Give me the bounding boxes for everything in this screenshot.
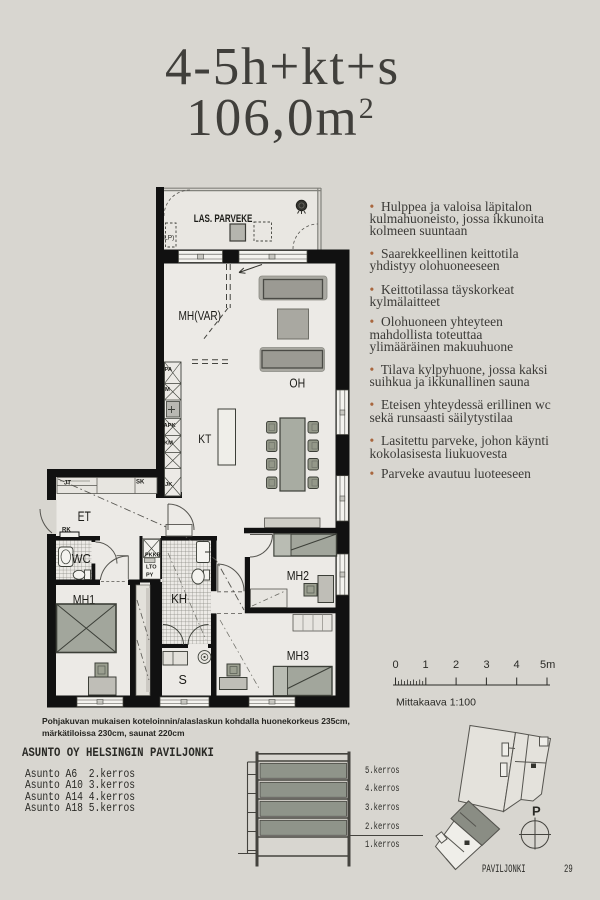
svg-text:3: 3: [484, 659, 490, 671]
svg-text:S: S: [179, 673, 187, 687]
svg-text:LAS. PARVEKE: LAS. PARVEKE: [194, 213, 253, 225]
svg-text:APK: APK: [164, 423, 177, 429]
svg-text:LTO: LTO: [146, 565, 157, 571]
svg-text:1: 1: [423, 659, 429, 671]
svg-text:4: 4: [514, 659, 520, 671]
svg-text:KM: KM: [164, 441, 173, 447]
svg-text:ET: ET: [78, 509, 91, 524]
svg-text:P: P: [532, 804, 541, 819]
svg-text:SK: SK: [136, 480, 145, 486]
svg-text:2: 2: [453, 659, 459, 671]
svg-text:JK: JK: [165, 482, 173, 488]
svg-text:PA: PA: [165, 367, 173, 373]
svg-text:OH: OH: [289, 376, 305, 391]
svg-text:WC: WC: [72, 551, 91, 566]
svg-text:KH: KH: [171, 591, 187, 606]
svg-text:MH2: MH2: [287, 569, 309, 583]
svg-text:KT: KT: [198, 432, 211, 446]
svg-text:0: 0: [393, 659, 399, 671]
svg-text:Mittakaava 1:100: Mittakaava 1:100: [396, 697, 476, 709]
svg-text:MH3: MH3: [287, 649, 309, 663]
svg-text:M: M: [165, 387, 170, 393]
svg-text:PKKR: PKKR: [145, 553, 161, 559]
svg-text:MH(VAR): MH(VAR): [179, 309, 222, 323]
svg-text:5m: 5m: [540, 659, 555, 671]
svg-text:PY: PY: [146, 573, 154, 579]
